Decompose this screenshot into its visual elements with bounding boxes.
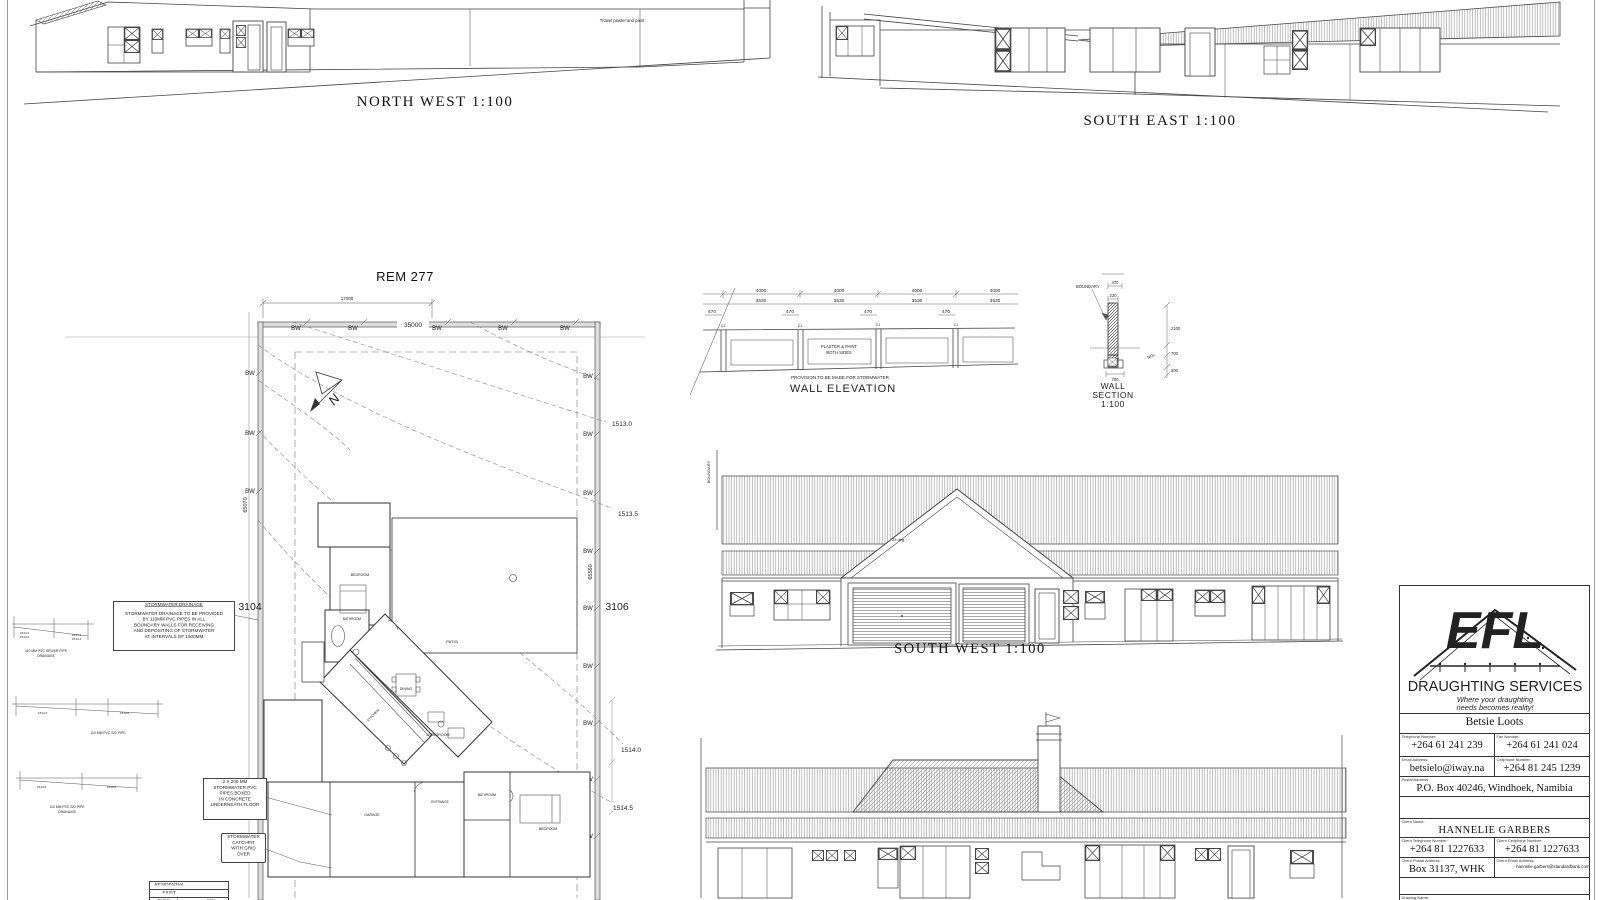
contour-labels: 1513.0 1513.5 1514.0 1514.5 <box>606 418 649 812</box>
floor-plan-walls <box>264 503 590 877</box>
boundary-label: BOUNDARY <box>1076 284 1100 289</box>
profile3-level: 1515.0 <box>107 785 117 789</box>
ne-roof <box>706 712 1346 838</box>
email-cell-row: Email Address: betsielo@iway.na Cellphon… <box>1400 757 1589 777</box>
south-east-elevation-drawing <box>810 0 1570 130</box>
pipe-profile-2: 1514.3 1514.6 110 MM PVC S/D PIPE <box>8 692 168 742</box>
profile1-caption-1: 110 MM PVC SEWER PIPE <box>25 649 68 653</box>
client-cellphone-label: Client Cellphone Number: <box>1495 838 1589 841</box>
catchpit-line: STORMWATER <box>222 834 265 840</box>
north-west-elevation-title: NORTH WEST 1:100 <box>300 94 570 111</box>
dim-4000: 4000 <box>834 288 845 294</box>
schedule-table: RESIDENTIAL DWELLING EXIST. STRUCTURE BL… <box>149 881 229 900</box>
telephone-label: Telephone Number: <box>1400 734 1495 737</box>
title-block: EFL DRAUGHTING SERVICES Where your draug… <box>1399 585 1590 900</box>
profile1-level: 1514.4 <box>72 637 82 641</box>
nw-windows <box>108 21 314 72</box>
south-west-elevation-drawing: BOUNDARY 25 deg <box>695 435 1345 665</box>
dim-200: 200 <box>1171 368 1179 373</box>
client-name-row: Client Name: HANNELIE GARBERS <box>1400 819 1589 838</box>
wall-section-drawing: BOUNDARY 470 220 700 2100 700 200 NGL WA… <box>1040 270 1180 420</box>
north-letter: N <box>325 391 343 408</box>
bw-label: BW <box>583 549 593 555</box>
email-label: Email Address: <box>1400 757 1495 760</box>
profile3-caption-1: 110 MM PVC S/D PIPE <box>49 805 85 809</box>
wall-elev-dims <box>703 290 1018 315</box>
room-patio: PATIO <box>446 639 457 644</box>
contour-1514.0: 1514.0 <box>621 747 641 754</box>
fax-label: Fax Number: <box>1495 734 1589 737</box>
profile1-caption-2: DRAINAGE <box>37 654 55 658</box>
dim-4000: 4000 <box>912 288 923 294</box>
bw-left: BW BW BW <box>245 371 255 495</box>
profile2-level: 1514.3 <box>38 711 48 715</box>
client-name-value: HANNELIE GARBERS <box>1400 825 1589 836</box>
top-dimension <box>260 299 435 318</box>
wall-section-title-3: 1:100 <box>1101 399 1125 409</box>
fax-value: +264 61 241 024 <box>1495 740 1589 751</box>
bw-label: BW <box>583 606 593 612</box>
sheet-border-left <box>7 0 8 900</box>
dim-3530: 3530 <box>834 298 845 304</box>
wall-elevation-drawing: 4000 4000 4000 4000 3530 3530 3530 3530 … <box>690 270 1020 400</box>
nw-plaster-note: Trowel plaster and paint <box>600 18 645 23</box>
email-cell: Email Address: betsielo@iway.na <box>1400 757 1495 776</box>
schedule-cell: RESIDENTIAL DWELLING <box>150 882 189 886</box>
bw-label: BW <box>583 432 593 438</box>
bw-label: BW <box>583 721 593 727</box>
sw-windows <box>730 583 1330 645</box>
site-plan-title: REM 277 <box>330 269 480 284</box>
dim-2100: 2100 <box>1171 326 1180 331</box>
pipe-profile-1: 1514.2 1514.5 1514.1 1514.4 110 MM PVC S… <box>8 612 98 664</box>
dim-700-below: 700 <box>1171 351 1179 356</box>
company-name: DRAUGHTING SERVICES <box>1408 679 1583 695</box>
bw-label: BW <box>432 326 442 332</box>
drawing-name-row: Drawing Name: Proposed New Dwelling <box>1400 895 1589 900</box>
tagline-2: needs becomes reality! <box>1456 703 1534 712</box>
column-c1: C1 <box>876 323 881 327</box>
empty-row <box>1400 878 1589 895</box>
dim-470-top: 470 <box>1112 280 1120 285</box>
schedule-row: RESIDENTIAL DWELLING <box>150 882 228 890</box>
panel-note-1: PLASTER & PAINT <box>821 344 858 349</box>
client-postal-label: Client Postal Address: <box>1400 858 1495 861</box>
bw-label: BW <box>245 489 255 495</box>
client-name-label: Client Name: <box>1400 819 1589 822</box>
erf-3106: 3106 <box>605 601 629 613</box>
bw-label: BW <box>583 374 593 380</box>
room-livingroom: LIVINGROOM <box>427 733 450 737</box>
client-phone-row: Client Telephone Number: +264 81 1227633… <box>1400 838 1589 858</box>
bw-label: BW <box>583 491 593 497</box>
room-entrance: ENTRANCE <box>431 800 449 804</box>
telephone-cell: Telephone Number: +264 61 241 239 <box>1400 734 1495 756</box>
dim-470: 470 <box>864 309 872 315</box>
room-bedroom-1: BEDROOM <box>351 573 370 577</box>
column-c1: C1 <box>798 324 803 328</box>
title-block-logo: EFL DRAUGHTING SERVICES Where your draug… <box>1400 586 1589 714</box>
profile2-level: 1514.6 <box>120 711 130 715</box>
north-east-elevation-drawing <box>695 690 1355 900</box>
erf-3104: 3104 <box>238 601 262 613</box>
client-telephone-label: Client Telephone Number: <box>1400 838 1495 841</box>
dim-35000: 35000 <box>404 322 422 329</box>
ne-windows <box>718 845 1314 898</box>
column-c1: C1 <box>721 324 726 328</box>
efl-logo: EFL DRAUGHTING SERVICES Where your draug… <box>1400 586 1589 712</box>
client-telephone-cell: Client Telephone Number: +264 81 1227633 <box>1400 838 1495 857</box>
contour-1513.0: 1513.0 <box>612 421 632 428</box>
bw-label: BW <box>560 326 570 332</box>
client-postal-value: Box 31137, WHK <box>1400 864 1494 875</box>
drawing-name-label: Drawing Name: <box>1400 895 1589 898</box>
catchpit-note-box: STORMWATER CATCHPIT WITH GRID OVER <box>221 833 266 863</box>
postal-row: Postal Address: P.O. Box 40246, Windhoek… <box>1400 777 1589 797</box>
bw-label: BW <box>348 326 358 332</box>
dim-65070: 65070 <box>243 497 249 512</box>
dim-17000: 17000 <box>341 296 354 301</box>
profile3-level: 1514.6 <box>37 785 47 789</box>
north-arrow: N <box>310 372 343 412</box>
dim-220: 220 <box>1110 293 1118 298</box>
dim-65560: 65560 <box>588 564 594 579</box>
cellphone-cell: Cellphone Number: +264 81 245 1239 <box>1495 757 1589 776</box>
empty-row <box>1400 797 1589 819</box>
postal-label: Postal Address: <box>1400 777 1589 780</box>
column-c1: C1 <box>954 323 959 327</box>
dim-3530: 3530 <box>990 298 1001 304</box>
client-postal-row: Client Postal Address: Box 31137, WHK Cl… <box>1400 858 1589 878</box>
profile1-level: 1514.5 <box>20 635 30 639</box>
client-email-value: hannelie.garbers@standardbank.com.na <box>1516 864 1568 869</box>
bw-label: BW <box>583 664 593 670</box>
pipes-line: UNDERNEATH FLOOR <box>204 802 266 808</box>
dim-470: 470 <box>786 309 794 315</box>
profile2-caption: 110 MM PVC S/D PIPE <box>90 731 126 735</box>
south-east-elevation-title: SOUTH EAST 1:100 <box>1020 113 1300 130</box>
contact-name: Betsie Loots <box>1400 714 1589 734</box>
stormwater-pipes-note-box: 2 X 200 MM STORMWATER PVC PIPES BOXED IN… <box>203 778 267 820</box>
contour-1513.5: 1513.5 <box>618 511 638 518</box>
room-bathroom-2: BATHROOM <box>478 793 497 797</box>
ngl-label: NGL <box>1146 352 1156 360</box>
pipe-profile-3: 1514.6 1515.0 110 MM PVC S/D PIPE DRAINA… <box>12 768 147 820</box>
client-postal-cell: Client Postal Address: Box 31137, WHK <box>1400 858 1495 877</box>
phone-fax-row: Telephone Number: +264 61 241 239 Fax Nu… <box>1400 734 1589 757</box>
stormwater-line: AT INTERVALS OF 1500MM <box>114 634 234 640</box>
roof-pitch-label: 25 deg <box>892 537 904 542</box>
stormwater-provision-note: PROVISION TO BE MADE FOR STORMWATER <box>791 375 890 380</box>
dim-470: 470 <box>708 309 716 315</box>
cellphone-label: Cellphone Number: <box>1495 757 1589 760</box>
right-dim-line <box>609 697 615 815</box>
bw-label: BW <box>245 371 255 377</box>
client-cellphone-cell: Client Cellphone Number: +264 81 1227633 <box>1495 838 1589 857</box>
fax-cell: Fax Number: +264 61 241 024 <box>1495 734 1589 756</box>
south-west-elevation-title: SOUTH WEST 1:100 <box>830 641 1110 658</box>
dim-4000: 4000 <box>756 288 767 294</box>
catchpit-line: OVER <box>222 851 265 857</box>
wall-elevation-title: WALL ELEVATION <box>790 383 896 395</box>
schedule-cell: EXIST. STRUCTURE <box>150 890 189 894</box>
postal-value: P.O. Box 40246, Windhoek, Namibia <box>1400 783 1589 794</box>
wall-section-dims <box>1090 274 1170 378</box>
stormwater-note-box: STORMWATER DRAINAGE STORMWATER DRAINAGE … <box>113 601 235 651</box>
dim-470: 470 <box>942 309 950 315</box>
room-garage: GARAGE <box>364 813 380 817</box>
cellphone-value: +264 81 245 1239 <box>1495 763 1589 774</box>
schedule-row: EXIST. STRUCTURE <box>150 890 228 898</box>
sw-boundary-label: BOUNDARY <box>706 460 711 483</box>
logo-efl-script: EFL <box>1446 602 1544 660</box>
drawing-sheet: Trowel plaster and paint NORTH WEST 1:10… <box>0 0 1600 900</box>
client-email-cell: Client Email Address: hannelie.garbers@s… <box>1495 858 1589 877</box>
dim-4000: 4000 <box>990 288 1001 294</box>
profile3-caption-2: DRAINAGE <box>58 810 76 814</box>
sheet-border-right <box>1594 0 1595 900</box>
client-email-label: Client Email Address: <box>1495 858 1589 861</box>
bw-label: BW <box>498 326 508 332</box>
wall-section-wall <box>1104 303 1123 368</box>
bw-right: BW BW BW BW BW BW BW BW BW <box>583 374 593 840</box>
telephone-value: +264 61 241 239 <box>1400 740 1494 751</box>
client-telephone-value: +264 81 1227633 <box>1400 844 1494 855</box>
room-dining: DINING <box>400 687 413 691</box>
room-bedroom-2: BEDROOM <box>539 827 558 831</box>
bw-label: BW <box>245 431 255 437</box>
email-value: betsielo@iway.na <box>1400 763 1494 774</box>
room-bathroom-1: BATHROOM <box>343 617 362 621</box>
contour-1514.5: 1514.5 <box>613 805 633 812</box>
bw-label: BW <box>291 326 301 332</box>
dim-3530: 3530 <box>756 298 767 304</box>
client-cellphone-value: +264 81 1227633 <box>1495 844 1589 855</box>
sw-roof <box>722 476 1338 578</box>
panel-note-2: BOTH SIDES <box>826 350 852 355</box>
wall-section-title: WALL SECTION 1:100 <box>1092 381 1133 409</box>
dim-3530: 3530 <box>912 298 923 304</box>
